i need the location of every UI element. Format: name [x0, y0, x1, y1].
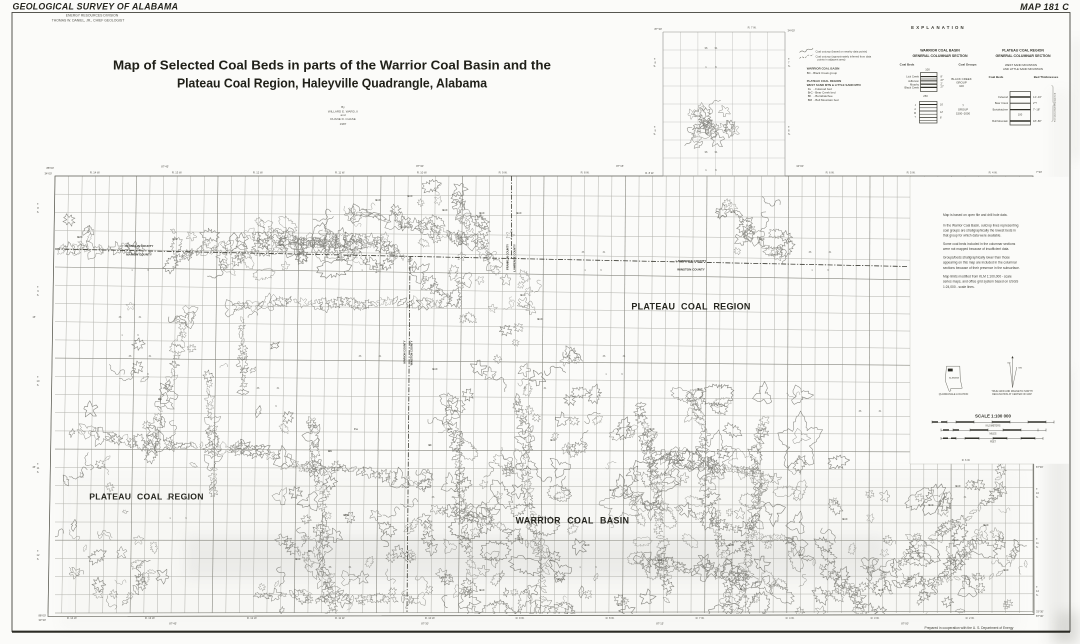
- svg-text:T.: T.: [37, 375, 39, 379]
- svg-text:B-C: B-C: [443, 208, 448, 212]
- svg-text:S.: S.: [1036, 593, 1039, 597]
- svg-text:100: 100: [925, 68, 930, 72]
- svg-text:Plateau Coal Region, Haleyv: Plateau Coal Region, Haleyville Quadrang…: [177, 76, 488, 91]
- svg-text:R. 13 W.: R. 13 W.: [145, 616, 156, 620]
- svg-text:BC - Black Creek group: BC - Black Creek group: [807, 71, 838, 75]
- svg-text:Bh: Bh: [328, 449, 332, 453]
- svg-text:KILOMETERS: KILOMETERS: [986, 425, 1001, 427]
- svg-text:R. 14 W.: R. 14 W.: [90, 171, 101, 175]
- svg-text:B-C: B-C: [173, 237, 178, 241]
- svg-text:B-C: B-C: [929, 503, 934, 507]
- svg-text:S.: S.: [37, 293, 40, 297]
- svg-text:R. 4 W.: R. 4 W.: [786, 616, 795, 620]
- svg-text:R. 9 W.: R. 9 W.: [516, 616, 525, 620]
- svg-text:S.: S.: [788, 132, 791, 136]
- svg-text:B-C: B-C: [296, 557, 301, 561]
- svg-text:T.: T.: [788, 57, 790, 61]
- svg-text:B-C: B-C: [517, 211, 522, 215]
- svg-text:Lick Creek: Lick Creek: [906, 75, 919, 79]
- svg-text:18′–80″: 18′–80″: [1033, 119, 1042, 123]
- svg-text:M: M: [914, 112, 916, 115]
- svg-text:WARRIOR COAL BASIN: WARRIOR COAL BASIN: [920, 49, 960, 53]
- svg-text:1:24,000 - scale lines.: 1:24,000 - scale lines.: [943, 285, 975, 289]
- svg-text:87°30′: 87°30′: [654, 27, 662, 31]
- svg-text:Jefferson: Jefferson: [908, 79, 920, 83]
- svg-text:100: 100: [959, 84, 964, 88]
- svg-text:T.: T.: [37, 285, 39, 289]
- svg-text:PLATEAU COAL REGION: PLATEAU COAL REGION: [1002, 49, 1044, 53]
- svg-text:GEOLOGICAL SURVEY OF ALABAMA: GEOLOGICAL SURVEY OF ALABAMA: [13, 2, 179, 12]
- svg-text:Fu: Fu: [354, 427, 358, 431]
- svg-text:R. 3 W.: R. 3 W.: [871, 616, 880, 620]
- svg-text:Black Creek: Black Creek: [905, 86, 920, 90]
- svg-text:B-C: B-C: [956, 484, 961, 488]
- svg-text:SCALE 1:100 000: SCALE 1:100 000: [975, 414, 1011, 419]
- svg-text:WARRIOR COAL BASIN: WARRIOR COAL BASIN: [516, 516, 630, 526]
- svg-text:7°30′: 7°30′: [1036, 170, 1043, 174]
- svg-text:S.: S.: [653, 64, 656, 68]
- svg-text:B-C: B-C: [731, 210, 736, 214]
- svg-text:QUADRANGLE LOCATION: QUADRANGLE LOCATION: [939, 393, 969, 396]
- svg-text:DECLINATION AT CENTER OF MAP: DECLINATION AT CENTER OF MAP: [992, 393, 1032, 396]
- svg-text:Bt: Bt: [429, 443, 432, 447]
- svg-text:B-C: B-C: [280, 243, 285, 247]
- svg-text:R. 12 W.: R. 12 W.: [247, 616, 258, 620]
- svg-text:GENERAL COLUMNAR SECTION: GENERAL COLUMNAR SECTION: [913, 54, 968, 58]
- svg-text:series maps, and office grid s: series maps, and office grid system base…: [943, 280, 1019, 284]
- svg-text:Bed Thicknesses: Bed Thicknesses: [1034, 75, 1059, 79]
- svg-text:B-C: B-C: [729, 543, 734, 547]
- svg-text:T.: T.: [1036, 537, 1038, 541]
- svg-text:87°15′: 87°15′: [616, 164, 624, 168]
- svg-text:S.: S.: [37, 210, 40, 214]
- svg-text:GENERAL COLUMNAR SECTION: GENERAL COLUMNAR SECTION: [996, 54, 1051, 58]
- svg-text:33°30′: 33°30′: [38, 618, 46, 622]
- svg-text:S.: S.: [653, 132, 656, 136]
- svg-text:2″?: 2″?: [1033, 101, 1037, 105]
- svg-text:Burtahatchee: Burtahatchee: [993, 108, 1009, 112]
- svg-text:88°00′: 88°00′: [46, 166, 54, 170]
- svg-text:B-C: B-C: [1004, 568, 1009, 572]
- svg-text:87°30′: 87°30′: [1036, 465, 1044, 469]
- svg-text:B-C: B-C: [879, 588, 884, 592]
- svg-text:S.: S.: [788, 64, 791, 68]
- svg-text:27′: 27′: [941, 85, 945, 89]
- svg-text:Map is based on open file and: Map is based on open file and drill hole…: [943, 213, 1008, 217]
- svg-text:Coal Groups: Coal Groups: [958, 62, 976, 66]
- svg-text:B-C: B-C: [954, 538, 959, 542]
- svg-text:R. 10 W.: R. 10 W.: [417, 171, 428, 175]
- svg-text:B-C: B-C: [480, 211, 485, 215]
- svg-text:T.: T.: [37, 462, 39, 466]
- svg-text:were not mapped because of ins: were not mapped because of insufficient …: [943, 247, 1009, 251]
- svg-text:R. 13 W.: R. 13 W.: [172, 171, 183, 175]
- svg-text:B-C: B-C: [551, 438, 556, 442]
- svg-text:45′: 45′: [32, 465, 36, 469]
- svg-text:T.: T.: [788, 125, 790, 129]
- svg-text:R. 7 W.: R. 7 W.: [696, 616, 705, 620]
- svg-text:B-C: B-C: [984, 523, 989, 527]
- svg-text:Feet above Bull Mountain bed: Feet above Bull Mountain bed: [1054, 92, 1057, 122]
- svg-text:87°15′: 87°15′: [656, 622, 664, 626]
- svg-text:FEET: FEET: [990, 442, 996, 444]
- svg-text:B-C: B-C: [480, 588, 485, 592]
- svg-text:Coal Beds: Coal Beds: [989, 75, 1004, 79]
- svg-text:B-C: B-C: [519, 537, 524, 541]
- svg-text:B-C: B-C: [376, 198, 381, 202]
- svg-text:MAP 181 C: MAP 181 C: [1020, 2, 1069, 12]
- svg-text:ENERGY RESOURCES DIVISION: ENERGY RESOURCES DIVISION: [66, 14, 119, 18]
- svg-text:BrC: BrC: [77, 235, 82, 239]
- svg-text:T.: T.: [654, 57, 656, 61]
- svg-text:coal groups are stratigraph: coal groups are stratigraphically the lo…: [943, 229, 1016, 233]
- svg-text:S.: S.: [37, 557, 40, 561]
- svg-text:B-C: B-C: [558, 577, 563, 581]
- svg-text:100: 100: [1018, 112, 1023, 116]
- svg-text:B-C: B-C: [650, 427, 655, 431]
- svg-text:S.: S.: [37, 470, 40, 474]
- svg-text:R. 6 W.: R. 6 W.: [962, 458, 971, 462]
- svg-text:Fu: Fu: [746, 219, 750, 223]
- svg-text:B-C: B-C: [448, 427, 453, 431]
- svg-text:Bear Creek: Bear Creek: [995, 101, 1009, 105]
- svg-text:Groups/beds stratigraphicall: Groups/beds stratigraphically lower than…: [943, 256, 1010, 260]
- svg-text:1987: 1987: [340, 122, 347, 126]
- svg-text:34°00′: 34°00′: [788, 29, 796, 33]
- svg-text:R. 10 W.: R. 10 W.: [425, 616, 436, 620]
- svg-text:87°45′: 87°45′: [161, 165, 169, 169]
- svg-text:LAWRENCE COUNTY: LAWRENCE COUNTY: [676, 259, 707, 263]
- svg-text:33°30′: 33°30′: [1036, 610, 1044, 614]
- svg-text:R. 8 W.: R. 8 W.: [606, 616, 615, 620]
- svg-text:Coal outcrop (based on nearby: Coal outcrop (based on nearby data point…: [816, 50, 868, 54]
- svg-text:B-C: B-C: [760, 237, 765, 241]
- svg-text:B-C: B-C: [585, 543, 590, 547]
- svg-text:B-C: B-C: [610, 488, 615, 492]
- svg-text:T.: T.: [37, 549, 39, 553]
- svg-text:MILES: MILES: [990, 433, 997, 435]
- svg-text:R. 6 W.: R. 6 W.: [826, 171, 835, 175]
- svg-text:34°00′: 34°00′: [796, 164, 804, 168]
- svg-text:DUANE D. CHASE: DUANE D. CHASE: [330, 117, 356, 121]
- svg-text:B-C: B-C: [338, 255, 343, 259]
- svg-text:R. 9 W.: R. 9 W.: [499, 171, 508, 175]
- svg-text:34°00′: 34°00′: [44, 172, 52, 176]
- svg-text:7′–18″: 7′–18″: [1033, 108, 1040, 112]
- svg-text:R. 4 W.: R. 4 W.: [989, 171, 998, 175]
- svg-text:R. 12 W.: R. 12 W.: [253, 171, 264, 175]
- svg-text:B-C: B-C: [698, 387, 703, 391]
- svg-text:B-C: B-C: [433, 367, 438, 371]
- svg-text:87°45′: 87°45′: [169, 622, 177, 626]
- svg-text:Prepared in cooperation with t: Prepared in cooperation with the U. S. D…: [925, 626, 1014, 630]
- svg-text:R. 7 W.: R. 7 W.: [748, 26, 757, 30]
- svg-text:1500–2000: 1500–2000: [956, 112, 970, 116]
- svg-text:T.: T.: [654, 125, 656, 129]
- svg-text:Some coal beds included in: Some coal beds included in the columnar …: [943, 242, 1016, 246]
- svg-text:B-C: B-C: [843, 517, 848, 521]
- svg-text:R. 5 W.: R. 5 W.: [907, 171, 916, 175]
- svg-text:R. 14 W.: R. 14 W.: [67, 616, 78, 620]
- svg-text:FRANKLIN COUNTY: FRANKLIN COUNTY: [125, 244, 154, 248]
- svg-text:T.: T.: [37, 202, 39, 206]
- svg-text:EXPLANATION: EXPLANATION: [911, 25, 966, 30]
- svg-text:sections because of their pres: sections because of their presence in th…: [943, 266, 1020, 270]
- svg-text:WINSTON COUNTY: WINSTON COUNTY: [410, 340, 414, 365]
- svg-text:ALABAMA: ALABAMA: [949, 377, 959, 380]
- svg-text:R. 8 W.: R. 8 W.: [581, 171, 590, 175]
- svg-text:Fulwood: Fulwood: [998, 95, 1008, 99]
- svg-text:WARRIOR COAL BASIN: WARRIOR COAL BASIN: [807, 67, 840, 71]
- svg-text:88°00′: 88°00′: [38, 614, 46, 618]
- svg-text:B-C: B-C: [680, 458, 685, 462]
- svg-text:B-C: B-C: [618, 603, 623, 607]
- svg-text:R. 11 W.: R. 11 W.: [335, 616, 345, 620]
- svg-text:B-C: B-C: [741, 587, 746, 591]
- svg-text:FRANKLIN COUNTY: FRANKLIN COUNTY: [506, 244, 510, 270]
- svg-text:B-C: B-C: [908, 577, 913, 581]
- svg-text:that group for which data were: that group for which data were available…: [943, 234, 1001, 238]
- svg-text:S.: S.: [1036, 495, 1039, 499]
- svg-text:B-C: B-C: [799, 553, 804, 557]
- svg-text:appearing on this map are: appearing on this map are included in th…: [943, 261, 1018, 265]
- svg-text:B-C: B-C: [658, 558, 663, 562]
- svg-text:PLATEAU COAL REGION: PLATEAU COAL REGION: [631, 302, 750, 312]
- svg-text:T.: T.: [1036, 487, 1038, 491]
- svg-text:R. 8 W.: R. 8 W.: [645, 171, 654, 175]
- svg-text:MARION COUNTY: MARION COUNTY: [403, 340, 407, 363]
- svg-text:S.: S.: [37, 383, 40, 387]
- svg-text:B-C: B-C: [468, 513, 473, 517]
- svg-text:THOMAS W. DANIEL, JR., CHIEF G: THOMAS W. DANIEL, JR., CHIEF GEOLOGIST: [52, 18, 125, 22]
- svg-text:Bh: Bh: [158, 397, 162, 401]
- svg-text:Map of Selected Coal Beds: Map of Selected Coal Beds in parts of th…: [113, 58, 551, 73]
- svg-text:R. 2 W.: R. 2 W.: [966, 616, 975, 620]
- svg-text:WINSTON COUNTY: WINSTON COUNTY: [677, 267, 705, 271]
- svg-text:GN: GN: [1007, 363, 1011, 365]
- svg-text:14′–34″: 14′–34″: [1033, 95, 1042, 99]
- svg-text:87°30′: 87°30′: [416, 164, 424, 168]
- svg-text:In the Warrior Coal Basin, out: In the Warrior Coal Basin, outcrop lines…: [943, 223, 1019, 227]
- svg-text:S.: S.: [1036, 545, 1039, 549]
- svg-text:T.: T.: [1036, 585, 1038, 589]
- svg-text:BM - Bull Mountain bed: BM - Bull Mountain bed: [808, 98, 839, 102]
- svg-text:R. 11 W.: R. 11 W.: [335, 171, 345, 175]
- svg-text:250: 250: [923, 94, 928, 98]
- svg-text:Bh: Bh: [308, 549, 312, 553]
- svg-text:Coal Beds: Coal Beds: [900, 62, 915, 66]
- svg-text:MN: MN: [1019, 368, 1023, 370]
- svg-text:87°00′: 87°00′: [1036, 614, 1044, 618]
- svg-text:87°30′: 87°30′: [421, 622, 429, 626]
- svg-text:Map limits modified from K: Map limits modified from KLM 1:100,000 -…: [943, 275, 1012, 279]
- svg-text:15′: 15′: [32, 315, 36, 319]
- svg-text:AND LITTLE SAND MOUNTAIN: AND LITTLE SAND MOUNTAIN: [1003, 67, 1043, 71]
- svg-text:B-C: B-C: [401, 225, 406, 229]
- svg-text:87°00′: 87°00′: [901, 622, 909, 626]
- svg-text:B-C: B-C: [521, 293, 526, 297]
- svg-text:B-C: B-C: [344, 513, 349, 517]
- svg-text:points in adjacent area): points in adjacent area): [818, 58, 846, 62]
- svg-text:LAWRENCE COUNTY: LAWRENCE COUNTY: [513, 244, 517, 272]
- svg-text:Bull Mountain: Bull Mountain: [992, 119, 1008, 123]
- svg-text:B-C: B-C: [538, 317, 543, 321]
- svg-text:B-C: B-C: [408, 194, 413, 198]
